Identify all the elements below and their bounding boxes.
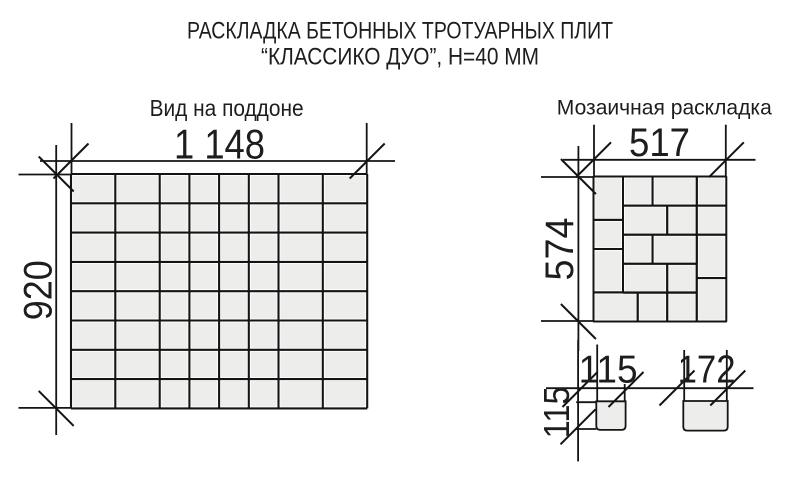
- svg-text:115: 115: [536, 386, 577, 438]
- svg-text:517: 517: [629, 121, 690, 165]
- svg-text:1 148: 1 148: [174, 120, 265, 167]
- svg-text:РАСКЛАДКА БЕТОННЫХ ТРОТУАРНЫХ: РАСКЛАДКА БЕТОННЫХ ТРОТУАРНЫХ ПЛИТ: [187, 18, 613, 45]
- svg-text:“КЛАССИКО ДУО”, Н=40 ММ: “КЛАССИКО ДУО”, Н=40 ММ: [261, 44, 539, 71]
- svg-text:115: 115: [579, 348, 638, 391]
- svg-text:Мозаичная раскладка: Мозаичная раскладка: [557, 97, 772, 120]
- svg-text:574: 574: [538, 218, 582, 281]
- svg-text:172: 172: [678, 348, 736, 391]
- svg-text:920: 920: [17, 260, 61, 320]
- svg-text:Вид на поддоне: Вид на поддоне: [150, 95, 304, 121]
